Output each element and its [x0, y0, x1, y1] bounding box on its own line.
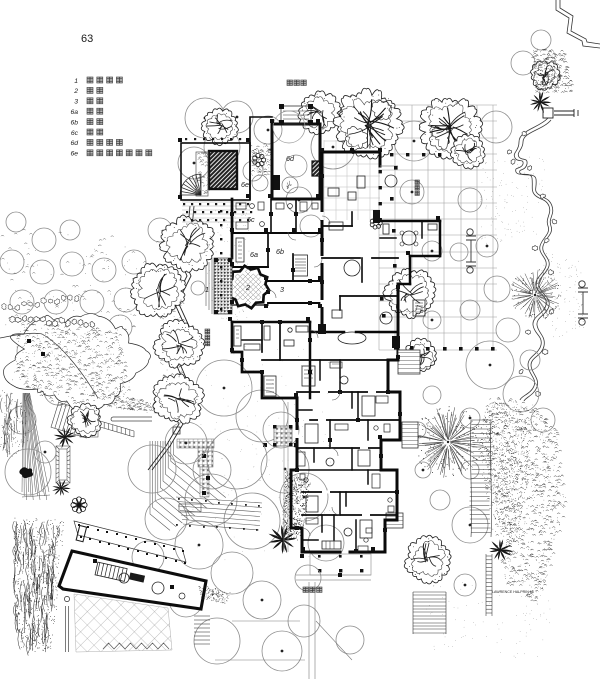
- svg-text:1: 1: [74, 78, 78, 85]
- svg-text:63: 63: [81, 33, 93, 45]
- svg-text:1: 1: [205, 285, 209, 294]
- svg-text:6a: 6a: [70, 109, 78, 116]
- svg-text:3: 3: [280, 285, 284, 294]
- svg-text:3: 3: [74, 99, 78, 106]
- svg-text:6c: 6c: [247, 215, 255, 224]
- svg-text:2: 2: [245, 283, 250, 292]
- svg-text:6a: 6a: [250, 250, 258, 259]
- svg-text:6c: 6c: [71, 130, 79, 137]
- svg-text:6d: 6d: [70, 140, 78, 147]
- svg-text:6b: 6b: [276, 247, 284, 256]
- svg-text:6b: 6b: [70, 119, 78, 126]
- svg-text:6e: 6e: [241, 180, 249, 189]
- svg-text:LAWRENCE HALPRIN 66: LAWRENCE HALPRIN 66: [492, 590, 534, 594]
- svg-text:6e: 6e: [70, 151, 78, 158]
- svg-text:6d: 6d: [286, 154, 295, 163]
- svg-text:2: 2: [73, 88, 78, 95]
